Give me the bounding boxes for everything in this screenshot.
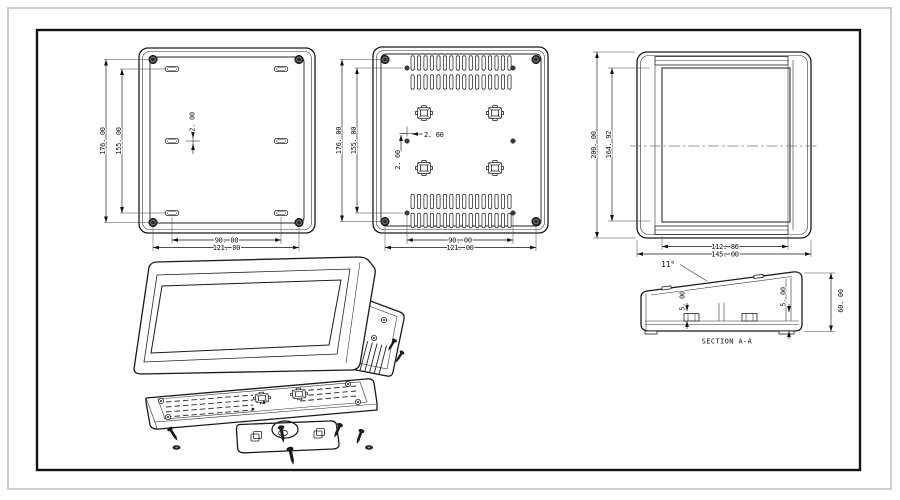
front-slot-offset-label: 2. 00 xyxy=(189,112,197,132)
side-outline xyxy=(637,52,811,238)
screw xyxy=(354,428,365,445)
back-view: 2. 60 2. 60 176. 00 155. 00 90. 00 xyxy=(335,47,548,252)
front-width-outer-label: 121. 00 xyxy=(213,244,240,252)
rear-tray-hole xyxy=(381,317,386,322)
section-wall-height-label: 5. 00 xyxy=(780,287,788,307)
section-angle-label: 11° xyxy=(661,259,675,269)
side-height-inner-label: 164. 92 xyxy=(605,131,613,158)
back-hole-y-label: 2. 60 xyxy=(394,150,402,170)
section-outline xyxy=(641,272,802,331)
rear-tray-hole xyxy=(371,335,376,340)
drawing-canvas: 2. 00 176. 00 155. 00 90. 00 121. 00 xyxy=(0,0,900,500)
section-angle-callout: 11° xyxy=(661,259,707,281)
screw xyxy=(286,446,297,466)
washer xyxy=(365,445,373,450)
washer xyxy=(173,445,181,450)
exploded-view xyxy=(134,257,405,466)
section-boss-height-label: 5. 00 xyxy=(679,291,687,311)
section-foot-left xyxy=(645,331,657,334)
section-title: SECTION A-A xyxy=(702,338,753,346)
exploded-base-tray xyxy=(146,379,377,429)
side-depth-outer-label: 145. 00 xyxy=(711,251,738,259)
front-height-inner-label: 155. 00 xyxy=(115,127,123,154)
drawing-sheet: 2. 00 176. 00 155. 00 90. 00 121. 00 xyxy=(0,0,900,500)
section-height-label: 60. 00 xyxy=(837,289,845,313)
bracket-socket xyxy=(314,429,325,439)
section-foot-right xyxy=(779,331,794,334)
back-height-outer-label: 176. 00 xyxy=(335,127,343,154)
section-dim-height: 60. 00 xyxy=(804,273,845,332)
back-height-inner-label: 155. 00 xyxy=(350,127,358,154)
exploded-top-cover xyxy=(134,257,375,374)
front-height-outer-label: 176. 00 xyxy=(99,127,107,154)
bracket-socket xyxy=(251,432,262,442)
back-hole-x-label: 2. 60 xyxy=(424,131,444,139)
section-view: 11° 5. 00 5. 00 60. 00 SECTION A-A xyxy=(641,259,845,346)
front-view: 2. 00 176. 00 155. 00 90. 00 121. 00 xyxy=(99,48,315,252)
side-view: 200. 00 164. 92 112. 86 145. 00 xyxy=(590,52,818,259)
back-width-outer-label: 121. 00 xyxy=(446,244,473,252)
side-height-outer-label: 200. 00 xyxy=(590,131,598,158)
back-outline xyxy=(373,47,548,233)
